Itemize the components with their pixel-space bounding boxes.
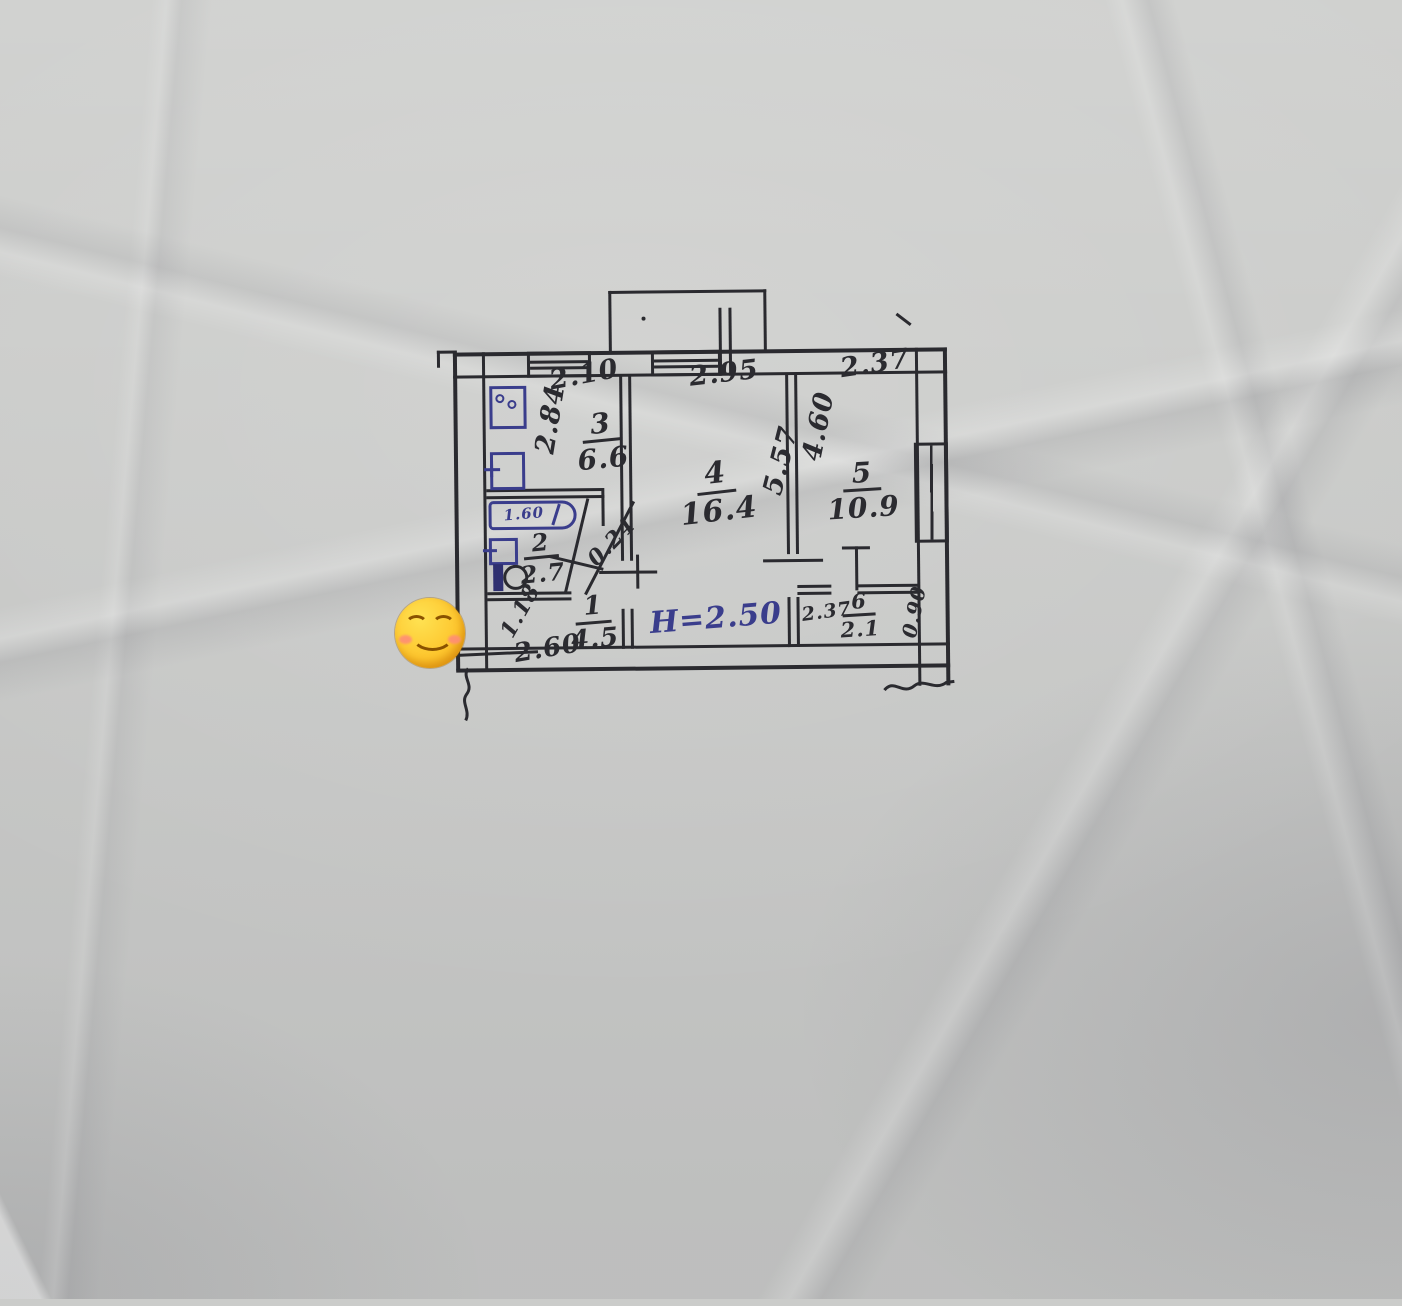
door-jamb-hall-living bbox=[636, 555, 639, 589]
room-number: 4 bbox=[694, 456, 737, 496]
room-closet-label: 6 2.1 bbox=[838, 589, 881, 641]
stove-burner-icon bbox=[495, 394, 504, 403]
balcony-outline bbox=[608, 289, 767, 353]
dim-kitchen-depth: 2.84 bbox=[531, 382, 569, 455]
sink-cross-icon bbox=[490, 461, 493, 477]
partition-bedroom-closet-left bbox=[797, 585, 831, 595]
washbasin-cross-icon bbox=[483, 549, 497, 552]
door-jamb-closet bbox=[855, 546, 858, 590]
dim-bathtub-length: 1.60 bbox=[503, 505, 545, 523]
room-area: 16.4 bbox=[679, 489, 759, 531]
wall-hook-top-left-v bbox=[437, 351, 440, 368]
dim-bedroom-depth: 4.60 bbox=[798, 389, 838, 463]
paper-tear-line-bottom-left bbox=[458, 668, 489, 720]
room-bedroom-label: 5 10.9 bbox=[824, 456, 900, 525]
room-area: 10.9 bbox=[826, 489, 900, 525]
photo-of-floor-plan: { "rooms": [ {"number":"1","area":"4.5"}… bbox=[0, 0, 1402, 1299]
emoji-cheek bbox=[448, 635, 461, 644]
room-living-label: 4 16.4 bbox=[675, 454, 759, 531]
room-number: 3 bbox=[580, 407, 621, 444]
room-number: 2 bbox=[521, 528, 558, 560]
door-mark-closet bbox=[842, 546, 870, 549]
partition-hall-living-lower bbox=[622, 609, 634, 649]
emoji-mouth bbox=[411, 619, 454, 651]
bedroom-window-icon bbox=[914, 442, 949, 542]
door-jamb-kitchen bbox=[601, 491, 604, 526]
room-area: 6.6 bbox=[576, 440, 631, 476]
dim-hall-depth: 1.18 bbox=[497, 580, 544, 641]
ceiling-height-note: H=2.50 bbox=[649, 599, 784, 640]
paper-tear-line-bottom-right bbox=[884, 673, 954, 700]
door-mark-bedroom bbox=[763, 559, 823, 563]
emoji-cheek bbox=[399, 635, 412, 644]
room-number: 1 bbox=[573, 592, 611, 626]
room-kitchen-label: 3 6.6 bbox=[573, 407, 631, 477]
room-area: 2.1 bbox=[840, 615, 881, 641]
corner-tick-top-right bbox=[895, 313, 911, 326]
door-mark-hall-living bbox=[599, 570, 657, 574]
toilet-tank-icon bbox=[493, 564, 503, 591]
stove-burner-icon bbox=[507, 400, 516, 409]
balcony-dot bbox=[642, 317, 646, 321]
dim-living-width: 2.95 bbox=[688, 356, 760, 391]
floor-plan: 2.10 2.84 3 6.6 2.95 5.57 4 16.4 2.37 4.… bbox=[0, 0, 1402, 1306]
room-number: 5 bbox=[842, 457, 882, 493]
partition-living-bedroom-lower bbox=[787, 597, 800, 647]
room-number: 6 bbox=[842, 589, 876, 617]
smiling-face-emoji bbox=[395, 598, 465, 668]
